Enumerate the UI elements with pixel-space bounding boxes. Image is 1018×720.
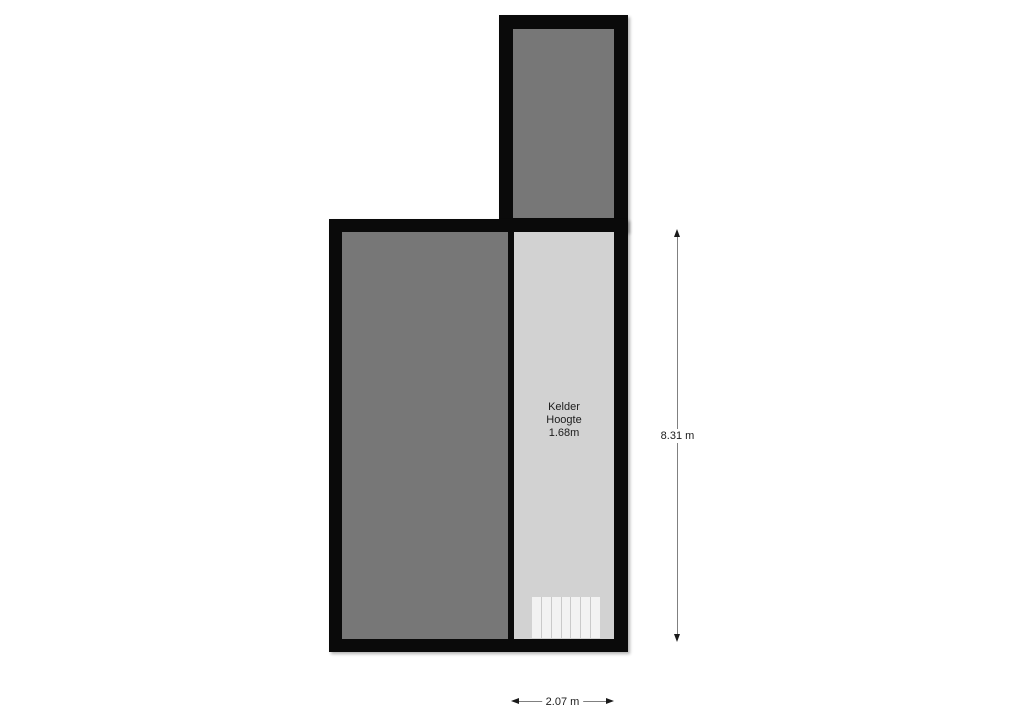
stair-tread <box>541 597 551 638</box>
lower-block-walls: Kelder Hoogte 1.68m <box>329 219 628 652</box>
left-room <box>342 232 508 639</box>
stair-tread <box>532 597 541 638</box>
horizontal-dimension-label: 2.07 m <box>542 695 584 709</box>
room-height-value: 1.68m <box>514 427 614 440</box>
stair-tread <box>580 597 590 638</box>
stairs <box>532 597 600 638</box>
stair-tread <box>570 597 580 638</box>
vertical-dimension: 8.31 m <box>671 229 684 642</box>
upper-block-walls <box>499 15 628 232</box>
horizontal-dimension: 2.07 m <box>511 695 614 708</box>
room-name-label: Kelder <box>514 401 614 414</box>
floorplan-canvas: Kelder Hoogte 1.68m 8.31 m 2.07 m <box>0 0 1018 720</box>
stair-tread <box>561 597 571 638</box>
arrow-right-icon <box>606 698 614 704</box>
vertical-dimension-label: 8.31 m <box>657 429 699 443</box>
arrow-up-icon <box>674 229 680 237</box>
upper-room <box>513 29 614 218</box>
kelder-label: Kelder Hoogte 1.68m <box>514 401 614 440</box>
stair-tread <box>590 597 600 638</box>
stair-tread <box>551 597 561 638</box>
arrow-down-icon <box>674 634 680 642</box>
kelder-room: Kelder Hoogte 1.68m <box>514 232 614 639</box>
room-height-label: Hoogte <box>514 414 614 427</box>
arrow-left-icon <box>511 698 519 704</box>
